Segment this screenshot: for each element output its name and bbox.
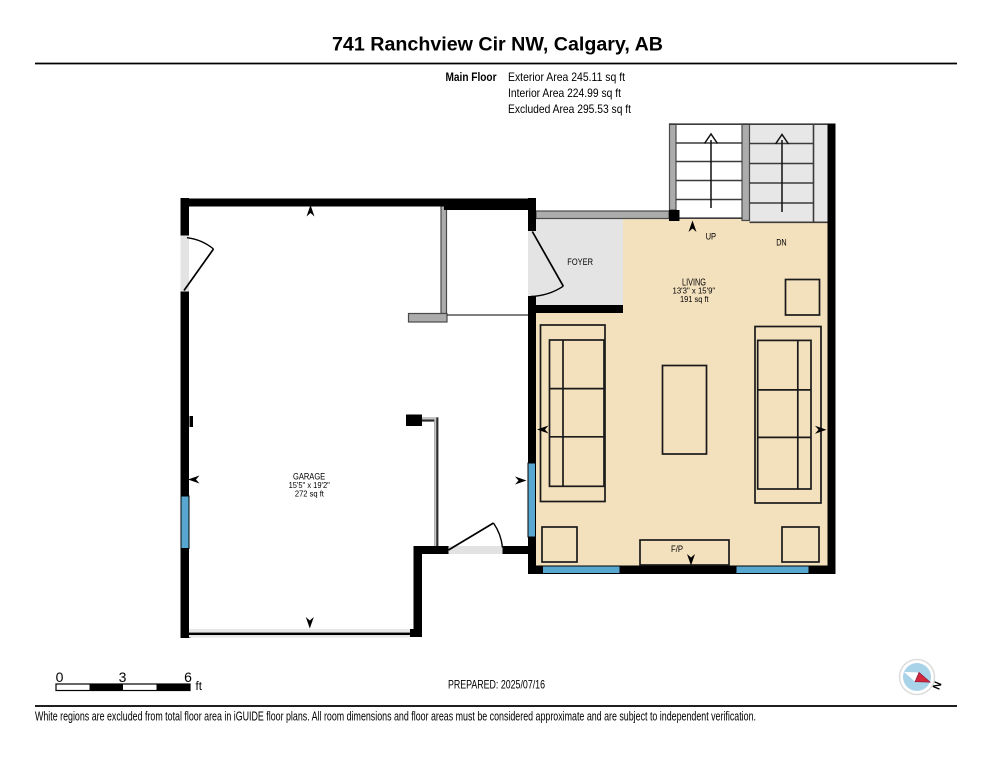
svg-text:F/P: F/P — [671, 544, 683, 554]
svg-text:White regions are excluded fro: White regions are excluded from total fl… — [35, 710, 756, 724]
svg-text:272 sq ft: 272 sq ft — [295, 488, 325, 498]
svg-text:3: 3 — [119, 669, 127, 685]
svg-text:0: 0 — [56, 669, 64, 685]
svg-text:PREPARED: 2025/07/16: PREPARED: 2025/07/16 — [448, 678, 545, 692]
svg-text:Exterior Area 245.11 sq ft: Exterior Area 245.11 sq ft — [508, 70, 626, 84]
svg-text:6: 6 — [184, 669, 192, 685]
svg-text:Excluded Area 295.53 sq ft: Excluded Area 295.53 sq ft — [508, 102, 632, 116]
svg-text:Interior Area 224.99 sq ft: Interior Area 224.99 sq ft — [508, 86, 622, 100]
svg-text:Main Floor: Main Floor — [446, 70, 497, 84]
svg-text:741 Ranchview Cir NW, Calgary,: 741 Ranchview Cir NW, Calgary, AB — [332, 35, 663, 56]
svg-text:191 sq ft: 191 sq ft — [680, 294, 709, 304]
svg-text:ft: ft — [196, 681, 203, 693]
svg-text:FOYER: FOYER — [567, 257, 593, 268]
svg-text:UP: UP — [706, 232, 717, 243]
svg-text:DN: DN — [776, 238, 787, 249]
